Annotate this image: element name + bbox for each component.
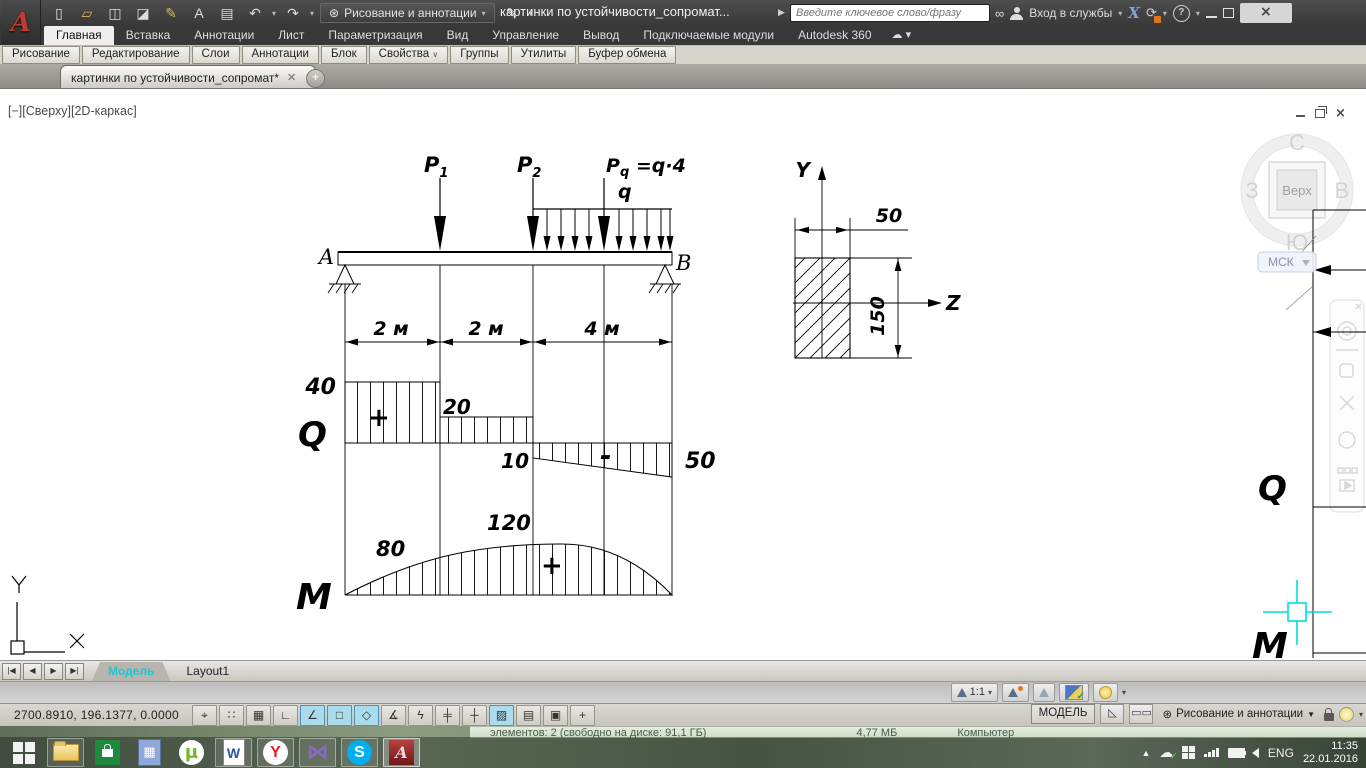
status-toggle-7[interactable]: ∡ bbox=[381, 705, 406, 726]
ucs-icon bbox=[11, 576, 84, 654]
viewcube-west[interactable]: З bbox=[1245, 178, 1258, 203]
tab-glavnaya[interactable]: Главная bbox=[44, 26, 114, 45]
dist-load-label: q bbox=[618, 181, 632, 203]
section-height-150: 150 bbox=[867, 296, 889, 336]
utorrent-icon: µ bbox=[179, 740, 204, 765]
panel-redaktirovanie[interactable]: Редактирование bbox=[82, 46, 190, 64]
status-toggle-11[interactable]: ▨ bbox=[489, 705, 514, 726]
side-q-label: Q bbox=[1258, 469, 1287, 509]
panel-utility[interactable]: Утилиты bbox=[511, 46, 577, 64]
title-expand-icon[interactable]: ▶ bbox=[778, 7, 785, 18]
get-windows-icon[interactable] bbox=[1182, 746, 1195, 759]
cloud-icon[interactable]: ☁ ▾ bbox=[884, 26, 920, 45]
gear-icon: ⊛ bbox=[1162, 707, 1172, 721]
user-avatar-icon bbox=[1010, 7, 1023, 20]
status-toggles: ⌖ ∷ ▦ ∟ ∠ □ ◇ ∡ ϟ ╪ ┼ ▨ ▤ ▣ + bbox=[192, 705, 595, 726]
word-icon: W bbox=[223, 739, 245, 766]
status-toggle-9[interactable]: ╪ bbox=[435, 705, 460, 726]
model-space-button[interactable]: МОДЕЛЬ bbox=[1031, 704, 1096, 724]
taskbar-word[interactable]: W bbox=[215, 738, 252, 767]
q-value-10: 10 bbox=[501, 449, 529, 473]
viewcube-south[interactable]: Ю bbox=[1286, 230, 1308, 255]
taskbar: ▦ µ W Y ⋈ S A ▲ ☁✓ ENG 11:35 22.01.2016 bbox=[0, 737, 1366, 768]
skype-icon: S bbox=[347, 740, 372, 765]
m-plus-sign: + bbox=[541, 551, 563, 581]
panel-sloi[interactable]: Слои bbox=[192, 46, 240, 64]
hidden-icons-icon[interactable]: ▲ bbox=[1142, 748, 1151, 758]
section-width-50: 50 bbox=[876, 205, 902, 227]
beam-dimensions: 2 м 2 м 4 м bbox=[345, 318, 672, 346]
autoscale-icon bbox=[1039, 688, 1049, 697]
new-file-icon[interactable]: ▯ bbox=[48, 5, 70, 22]
signin-dropdown-icon[interactable]: ▾ bbox=[1118, 9, 1122, 18]
ucs-x-axis-icon bbox=[70, 634, 84, 648]
status-toggle-5[interactable]: □ bbox=[327, 705, 352, 726]
last-tab-icon[interactable]: ▶| bbox=[65, 663, 84, 680]
close-button[interactable]: × bbox=[1240, 3, 1292, 23]
q-value-50: 50 bbox=[685, 449, 716, 474]
workspace-switcher[interactable]: ⊛ Рисование и аннотации ▼ bbox=[1158, 707, 1319, 721]
m-value-80: 80 bbox=[376, 537, 405, 561]
windows-start-icon bbox=[13, 742, 35, 764]
clock[interactable]: 11:35 22.01.2016 bbox=[1303, 740, 1358, 766]
workspace-switch-icon: ✓ bbox=[1065, 685, 1083, 700]
section-y-axis-label: Y bbox=[796, 158, 813, 182]
calculator-icon: ▦ bbox=[138, 739, 161, 766]
tab-vid[interactable]: Вид bbox=[435, 26, 481, 45]
undo-dropdown-icon[interactable]: ▾ bbox=[272, 9, 276, 18]
q-plus-sign: + bbox=[368, 403, 390, 433]
panel-risovanie[interactable]: Рисование bbox=[2, 46, 80, 64]
beam-loads bbox=[434, 178, 674, 251]
beam-label-b: B bbox=[675, 251, 691, 275]
autocad-taskbar-icon: A bbox=[389, 740, 414, 765]
status-toggle-10[interactable]: ┼ bbox=[462, 705, 487, 726]
speaker-icon[interactable] bbox=[1252, 748, 1259, 758]
ribbon-panels: Рисование Редактирование Слои Аннотации … bbox=[2, 46, 676, 64]
taskbar-skype[interactable]: S bbox=[341, 738, 378, 767]
annotation-scale-icon bbox=[957, 688, 967, 697]
undo-icon[interactable]: ↶ bbox=[244, 5, 266, 22]
taskbar-store[interactable] bbox=[89, 738, 126, 767]
panel-expand-icon: ∨ bbox=[432, 50, 438, 59]
yandex-icon: Y bbox=[263, 740, 288, 765]
taskbar-explorer[interactable] bbox=[47, 738, 84, 767]
ucs-menu[interactable]: МСК bbox=[1258, 252, 1316, 272]
network-signal-icon[interactable] bbox=[1204, 748, 1219, 757]
next-tab-icon[interactable]: ▶ bbox=[44, 663, 63, 680]
q-minus-sign: - bbox=[600, 439, 612, 472]
q-diagram-label: Q bbox=[298, 415, 327, 455]
ucs-label[interactable]: МСК bbox=[1268, 255, 1294, 269]
status-toggle-6[interactable]: ◇ bbox=[354, 705, 379, 726]
print-icon[interactable]: ▤ bbox=[216, 5, 238, 22]
time-text: 11:35 bbox=[1331, 740, 1358, 752]
titlebar-right-cluster: ∞ Вход в службы ▾ X ⟳ ▾ ? ▾ × bbox=[995, 2, 1292, 24]
side-m-label: M bbox=[1252, 626, 1288, 660]
panel-svoystva[interactable]: Свойства ∨ bbox=[369, 46, 449, 64]
panel-annotacii[interactable]: Аннотации bbox=[242, 46, 319, 64]
dim-4m-right: 4 м bbox=[583, 318, 619, 340]
tab-list[interactable]: Лист bbox=[266, 26, 316, 45]
m-diagram-label: M bbox=[296, 577, 332, 618]
workspace-switcher-label: Рисование и аннотации bbox=[1176, 708, 1303, 720]
exchange-apps-icon[interactable]: X bbox=[1128, 4, 1140, 22]
status-toggle-3[interactable]: ∟ bbox=[273, 705, 298, 726]
start-button[interactable] bbox=[5, 738, 42, 767]
tab-vyvod[interactable]: Вывод bbox=[571, 26, 631, 45]
drawing-quickview-icon[interactable]: ▭▭ bbox=[1129, 704, 1153, 724]
help-icon[interactable]: ? bbox=[1173, 5, 1190, 22]
m-diagram: 80 120 + M bbox=[296, 511, 672, 618]
cloud-sync-icon[interactable]: ☁✓ bbox=[1159, 744, 1173, 761]
workspace-selector[interactable]: ⊛ Рисование и аннотации ▾ bbox=[320, 3, 495, 23]
taskbar-yandex[interactable]: Y bbox=[257, 738, 294, 767]
new-drawing-button[interactable]: + bbox=[306, 69, 325, 88]
viewcube-north[interactable]: С bbox=[1289, 130, 1305, 155]
isolate-objects-icon[interactable] bbox=[1339, 707, 1354, 722]
help-dropdown-icon[interactable]: ▾ bbox=[1196, 9, 1200, 18]
cross-section: Y Z 50 150 bbox=[793, 158, 961, 358]
tab-parametrizaciya[interactable]: Параметризация bbox=[316, 26, 434, 45]
load-p2-label: P2 bbox=[517, 153, 541, 181]
quick-access-toolbar: ▯ ▱ ◫ ◪ ✎ A ▤ ↶▾ ↷▾ ⊛ Рисование и аннота… bbox=[48, 2, 533, 24]
viewcube-east[interactable]: В bbox=[1335, 178, 1350, 203]
status-toggle-8[interactable]: ϟ bbox=[408, 705, 433, 726]
app-logo[interactable]: A bbox=[2, 0, 41, 45]
lock-ui-icon[interactable] bbox=[1324, 713, 1334, 721]
status-toggle-14[interactable]: + bbox=[570, 705, 595, 726]
command-row[interactable] bbox=[0, 681, 1366, 704]
status-toggle-1[interactable]: ∷ bbox=[219, 705, 244, 726]
kmplayer-icon: ⋈ bbox=[307, 740, 329, 765]
status-menu-icon[interactable]: ▾ bbox=[1122, 688, 1126, 697]
taskbar-calculator[interactable]: ▦ bbox=[131, 738, 168, 767]
q-value-40: 40 bbox=[304, 375, 336, 400]
scale-dropdown-icon: ▾ bbox=[988, 688, 992, 697]
viewcube-face[interactable]: Верх bbox=[1282, 183, 1312, 198]
lightbulb-icon bbox=[1099, 686, 1112, 699]
search-input[interactable] bbox=[790, 4, 990, 22]
taskbar-utorrent[interactable]: µ bbox=[173, 738, 210, 767]
status-toggle-12[interactable]: ▤ bbox=[516, 705, 541, 726]
system-tray: ▲ ☁✓ ENG 11:35 22.01.2016 bbox=[1142, 740, 1366, 766]
annotation-scale-value: 1:1 bbox=[970, 686, 985, 698]
q-value-20: 20 bbox=[443, 395, 471, 419]
file-tab-close-icon[interactable]: ✕ bbox=[287, 71, 296, 84]
search-icon[interactable]: ∞ bbox=[995, 6, 1004, 21]
prev-tab-icon[interactable]: ◀ bbox=[23, 663, 42, 680]
dim-2m-left: 2 м bbox=[373, 318, 408, 340]
load-pq-label: Pq =q·4 bbox=[606, 155, 686, 180]
status-bar-right: МОДЕЛЬ ◺ ▭▭ ⊛ Рисование и аннотации ▼ ▾ bbox=[1031, 704, 1363, 724]
status-toggle-0[interactable]: ⌖ bbox=[192, 705, 217, 726]
tab-upravlenie[interactable]: Управление bbox=[480, 26, 571, 45]
section-z-axis-label: Z bbox=[945, 291, 961, 315]
gear-icon: ⊛ bbox=[329, 6, 339, 20]
workspace-switch-button[interactable]: ✓ bbox=[1059, 683, 1089, 702]
redo-icon[interactable]: ↷ bbox=[282, 5, 304, 22]
plot-tools-icon[interactable]: ✎ bbox=[160, 5, 182, 22]
drawing-canvas[interactable]: С З В Ю Верх bbox=[0, 88, 1366, 660]
redo-dropdown-icon[interactable]: ▾ bbox=[310, 9, 314, 18]
autocad-logo-icon: A bbox=[11, 8, 31, 38]
file-tab-label: картинки по устойчивости_сопромат* bbox=[71, 71, 279, 85]
tab-layout1[interactable]: Layout1 bbox=[170, 662, 245, 681]
chevron-down-icon: ▾ bbox=[482, 9, 486, 18]
layout-tab-bar: |◀ ◀ ▶ ▶| Модель Layout1 bbox=[0, 660, 1366, 682]
beam-label-a: A bbox=[317, 245, 334, 269]
annotation-scale-cluster: 1:1 ▾ ✓ ▾ bbox=[951, 683, 1126, 701]
panel-gruppy[interactable]: Группы bbox=[450, 46, 508, 64]
signin-button[interactable]: Вход в службы bbox=[1029, 6, 1112, 20]
taskbar-kmplayer[interactable]: ⋈ bbox=[299, 738, 336, 767]
ucs-y-axis-icon bbox=[12, 576, 26, 593]
ribbon-tabs: Главная Вставка Аннотации Лист Параметри… bbox=[44, 26, 919, 45]
autoscale-button[interactable] bbox=[1033, 683, 1055, 702]
orange-dot-icon bbox=[1018, 686, 1023, 691]
q-diagram: 40 20 10 50 + - Q bbox=[298, 375, 716, 477]
workspace-dropdown-icon: ▼ bbox=[1307, 710, 1315, 719]
isolate-button[interactable] bbox=[1093, 683, 1118, 702]
m-value-120: 120 bbox=[487, 511, 531, 535]
status-overflow-icon[interactable]: ▾ bbox=[1359, 710, 1363, 719]
coordinates-readout[interactable]: 2700.8910, 196.1377, 0.0000 bbox=[14, 708, 179, 722]
language-indicator[interactable]: ENG bbox=[1268, 746, 1294, 760]
save-icon[interactable]: ◫ bbox=[104, 5, 126, 22]
a360-dropdown-icon[interactable]: ▾ bbox=[1163, 9, 1167, 18]
date-text: 22.01.2016 bbox=[1303, 753, 1358, 765]
tab-model[interactable]: Модель bbox=[92, 662, 170, 681]
panel-blok[interactable]: Блок bbox=[321, 46, 367, 64]
tab-annotacii[interactable]: Аннотации bbox=[182, 26, 266, 45]
workspace-selector-label: Рисование и аннотации bbox=[344, 6, 476, 20]
file-tab[interactable]: картинки по устойчивости_сопромат* ✕ bbox=[60, 65, 316, 89]
viewcube[interactable]: С З В Ю Верх bbox=[1241, 130, 1353, 255]
restore-button[interactable] bbox=[1223, 8, 1234, 18]
folder-icon bbox=[53, 744, 79, 761]
annotation-visibility-icon bbox=[1008, 688, 1018, 697]
save-as-icon[interactable]: ◪ bbox=[132, 5, 154, 22]
status-toggle-13[interactable]: ▣ bbox=[543, 705, 568, 726]
store-icon bbox=[95, 740, 120, 765]
dim-2m-mid: 2 м bbox=[468, 318, 503, 340]
panel-bufer[interactable]: Буфер обмена bbox=[578, 46, 676, 64]
text-tool-icon[interactable]: A bbox=[188, 5, 210, 21]
minimize-button[interactable] bbox=[1206, 16, 1217, 18]
taskbar-autocad[interactable]: A bbox=[383, 738, 420, 767]
annotation-visibility-button[interactable] bbox=[1002, 683, 1029, 702]
tab-vstavka[interactable]: Вставка bbox=[114, 26, 183, 45]
open-file-icon[interactable]: ▱ bbox=[76, 5, 98, 22]
tab-autodesk360[interactable]: Autodesk 360 bbox=[786, 26, 883, 45]
status-toggle-2[interactable]: ▦ bbox=[246, 705, 271, 726]
layout-quickview-icon[interactable]: ◺ bbox=[1100, 704, 1124, 724]
first-tab-icon[interactable]: |◀ bbox=[2, 663, 21, 680]
autodesk360-icon[interactable]: ⟳ bbox=[1146, 5, 1157, 21]
window-title: картинки по устойчивости_сопромат... bbox=[500, 4, 790, 19]
load-p1-label: P1 bbox=[424, 153, 448, 181]
annotation-scale-button[interactable]: 1:1 ▾ bbox=[951, 683, 998, 702]
status-toggle-4[interactable]: ∠ bbox=[300, 705, 325, 726]
help-search bbox=[790, 3, 990, 21]
tab-moduli[interactable]: Подключаемые модули bbox=[631, 26, 786, 45]
